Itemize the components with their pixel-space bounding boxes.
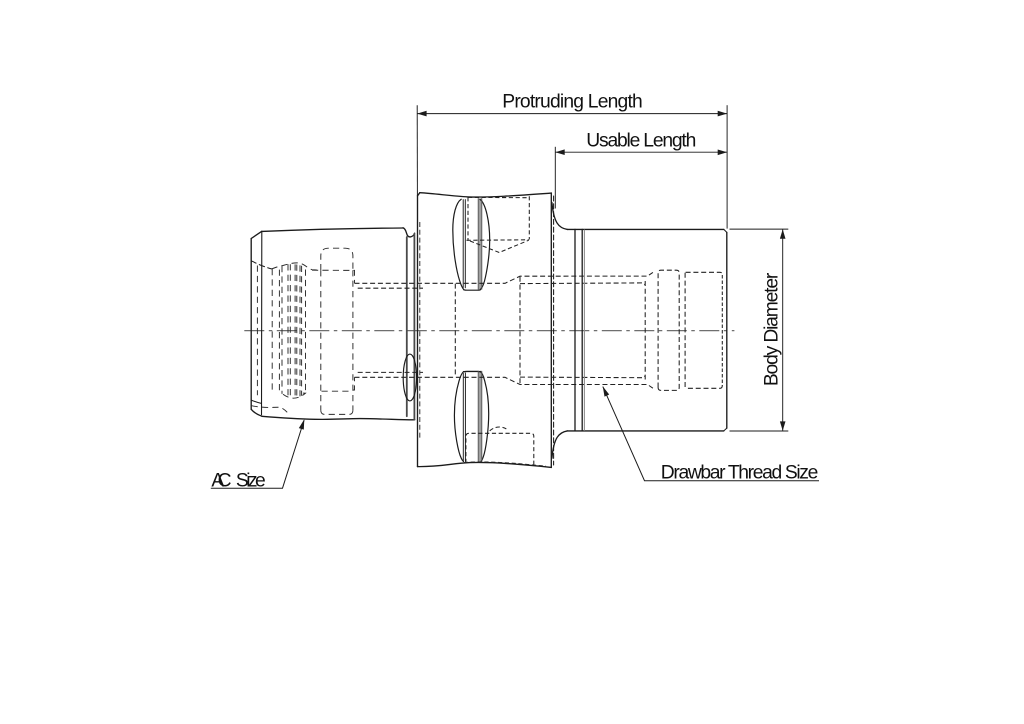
svg-text:AC: AC <box>211 471 231 492</box>
svg-text:Size: Size <box>236 471 266 492</box>
svg-text:Protruding Length: Protruding Length <box>502 92 643 113</box>
svg-text:Usable Length: Usable Length <box>586 131 696 152</box>
svg-text:Drawbar Thread Size: Drawbar Thread Size <box>661 462 819 483</box>
svg-text:Body Diameter: Body Diameter <box>761 272 782 386</box>
